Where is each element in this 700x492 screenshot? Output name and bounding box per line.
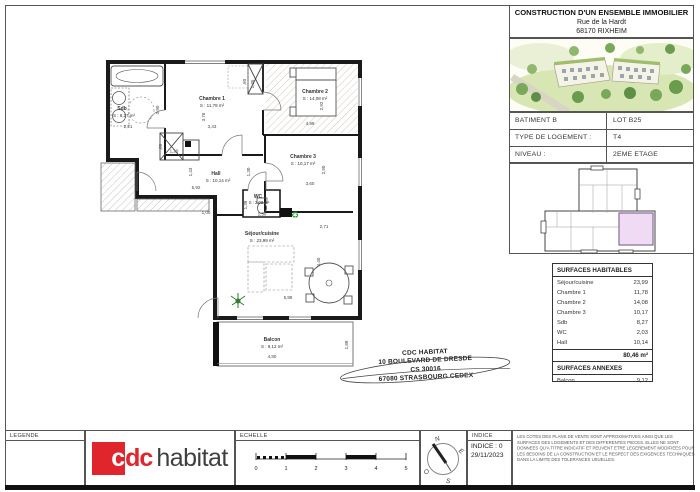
surface-row: Chambre 111,78 (557, 289, 648, 299)
annex-rows: Balcon9,12 (553, 375, 652, 387)
legende-header: LEGENDE (6, 431, 84, 441)
surface-value: 10,17 (633, 309, 648, 319)
dim-sejour-h: 4,40 (316, 257, 321, 266)
project-city: 68170 RIXHEIM (510, 27, 693, 36)
scale-number: 5 (404, 466, 407, 472)
logo-letters-dc: dc (125, 446, 152, 471)
surface-row: Sdb8,27 (557, 319, 648, 329)
dim-ch2-w: 4,99 (306, 121, 315, 126)
niveau-value: 2EME ETAGE (607, 147, 693, 164)
compass-cell: N E O S (420, 430, 467, 486)
disclaimer-cell: LES COTES DES PLANS DE VENTE SONT APPROX… (512, 430, 694, 486)
dim-sdb-h: 3,90 (155, 105, 160, 114)
surfaces-rows: Séjour/cuisine23,99 Chambre 111,78 Chamb… (553, 277, 652, 349)
scale-number: 3 (344, 466, 347, 472)
scale-number: 4 (374, 466, 377, 472)
surface-value: 10,14 (633, 339, 648, 349)
surface-label: Chambre 1 (557, 289, 586, 299)
scale-number: 0 (254, 466, 257, 472)
disclaimer-text: LES COTES DES PLANS DE VENTE SONT APPROX… (517, 434, 697, 463)
dim-ch1-w: 3,43 (208, 124, 217, 129)
indice-cell: INDICE INDICE : 0 29/11/2023 (467, 430, 512, 486)
surface-label: Chambre 3 (557, 309, 586, 319)
surface-value: 23,99 (633, 279, 648, 289)
surfaces-annexes-title: SURFACES ANNEXES (553, 361, 652, 375)
surface-label: Séjour/cuisine (557, 279, 593, 289)
indice-date: 29/11/2023 (468, 450, 511, 459)
type-logement-label: TYPE DE LOGEMENT : (510, 130, 607, 146)
project-render (509, 38, 694, 112)
dim-sdb-w: 2,21 (124, 124, 133, 129)
surface-label: WC (557, 329, 567, 339)
room-area-sdb: S : 8,27 m² (113, 113, 136, 118)
surface-row: Chambre 310,17 (557, 309, 648, 319)
sheet-bottom-rule (5, 485, 695, 490)
room-area-chambre3: S : 10,17 m² (291, 161, 316, 166)
room-area-chambre1: S : 11,78 m² (200, 103, 225, 108)
surface-value: 9,12 (637, 377, 648, 387)
surfaces-table: SURFACES HABITABLES Séjour/cuisine23,99 … (552, 263, 653, 382)
cdc-habitat-logo: c dc habitat (92, 442, 228, 475)
surfaces-habitables-title: SURFACES HABITABLES (553, 264, 652, 277)
room-label-chambre1: Chambre 1 (199, 96, 225, 102)
surface-label: Hall (557, 339, 567, 349)
type-logement-value: T4 (607, 130, 693, 146)
surface-label: Balcon (557, 377, 575, 387)
dim-ch3-w: 3,60 (306, 181, 315, 186)
room-label-sdb: Sdb (117, 106, 126, 112)
dim-closet2-w: ,60 (242, 78, 247, 85)
table-row: TYPE DE LOGEMENT : T4 (510, 130, 693, 147)
room-area-chambre2: S : 14,08 m² (303, 96, 328, 101)
logo-letter-c: c (111, 446, 125, 471)
echelle-cell: ECHELLE 0 1 2 3 4 5 (235, 430, 420, 486)
lot-value: LOT B25 (607, 113, 693, 129)
niveau-label: NIVEAU : (510, 147, 607, 164)
key-plan-drawing (527, 165, 677, 253)
dim-ch3-h: 2,90 (321, 165, 326, 174)
dim-wc-d: 1,00 (202, 210, 211, 215)
surface-label: Sdb (557, 319, 567, 329)
table-row: BATIMENT B LOT B25 (510, 113, 693, 130)
scale-number: 2 (314, 466, 317, 472)
indice-header: INDICE (468, 431, 511, 441)
surface-label: Chambre 2 (557, 299, 586, 309)
dim-closet1-h: ,60 (158, 143, 163, 150)
dim-ch1-h: 3,76 (201, 112, 206, 121)
dim-closet2-h: 1,35 (250, 79, 255, 88)
surface-value: 2,03 (637, 329, 648, 339)
highlighted-unit (619, 213, 653, 245)
dim-sejour-w: 5,88 (284, 295, 293, 300)
dim-wc-w: 1,50 (258, 212, 267, 217)
recycle-icon: ♻ (291, 210, 299, 220)
surface-row: WC2,03 (557, 329, 648, 339)
room-label-chambre3: Chambre 3 (290, 154, 316, 160)
surface-row: Chambre 214,08 (557, 299, 648, 309)
room-label-sejour: Séjour/cuisine (245, 231, 279, 237)
compass-s: S (445, 478, 451, 485)
surface-value: 8,27 (637, 319, 648, 329)
surface-row: Balcon9,12 (557, 377, 648, 387)
compass-o: O (423, 468, 430, 476)
surface-value: 14,08 (633, 299, 648, 309)
dim-hall-h: 1,43 (188, 167, 193, 176)
render-building-right (612, 58, 660, 84)
project-title: CONSTRUCTION D'UN ENSEMBLE IMMOBILIER (510, 8, 693, 18)
surface-row: Séjour/cuisine23,99 (557, 279, 648, 289)
room-label-balcon: Balcon (264, 337, 281, 343)
room-area-wc: S : 2,03 m² (249, 200, 270, 205)
dim-sejour-d: 2,71 (320, 224, 329, 229)
surface-row: Hall10,14 (557, 339, 648, 349)
project-street: Rue de la Hardt (510, 18, 693, 27)
dim-closet1-w: 1,20 (170, 149, 179, 154)
logo-word-habitat: habitat (156, 446, 228, 471)
dim-hall-d: 1,30 (246, 167, 251, 176)
surfaces-total: 80,46 m² (553, 349, 652, 361)
batiment-label: BATIMENT B (510, 113, 607, 129)
dim-balcon-h: 1,88 (344, 340, 349, 349)
logo-red-square: c (92, 442, 125, 475)
table-row: NIVEAU : 2EME ETAGE (510, 147, 693, 164)
dim-balcon-w: 4,80 (268, 354, 277, 359)
title-block: CONSTRUCTION D'UN ENSEMBLE IMMOBILIER Ru… (509, 5, 694, 38)
logo-cell: c dc habitat (85, 430, 235, 486)
room-area-balcon: S : 9,12 m² (261, 344, 284, 349)
dim-wc-h: 1,38 (243, 200, 248, 209)
north-arrow-icon: N E O S (421, 431, 466, 485)
room-label-chambre2: Chambre 2 (302, 89, 328, 95)
dim-hall-w: 5,92 (192, 185, 201, 190)
legende-cell: LEGENDE (5, 430, 85, 486)
room-area-sejour: S : 23,99 m² (250, 238, 275, 243)
surface-value: 11,78 (634, 289, 648, 299)
indice-value: INDICE : 0 (468, 441, 511, 450)
key-plan (509, 163, 694, 254)
echelle-header: ECHELLE (236, 431, 419, 441)
scale-number: 1 (284, 466, 287, 472)
compass-n: N (434, 435, 441, 443)
dim-ch2-h: 2,92 (319, 101, 324, 110)
render-illustration (510, 39, 694, 112)
scale-bar: 0 1 2 3 4 5 (236, 441, 419, 481)
lot-info-table: BATIMENT B LOT B25 TYPE DE LOGEMENT : T4… (509, 112, 694, 163)
room-label-hall: Hall (211, 171, 221, 177)
plan-sheet: ♻ Sdb S : 8,27 m² Chambre 1 S : 11,78 m²… (0, 0, 700, 492)
room-area-hall: S : 10,14 m² (206, 178, 231, 183)
